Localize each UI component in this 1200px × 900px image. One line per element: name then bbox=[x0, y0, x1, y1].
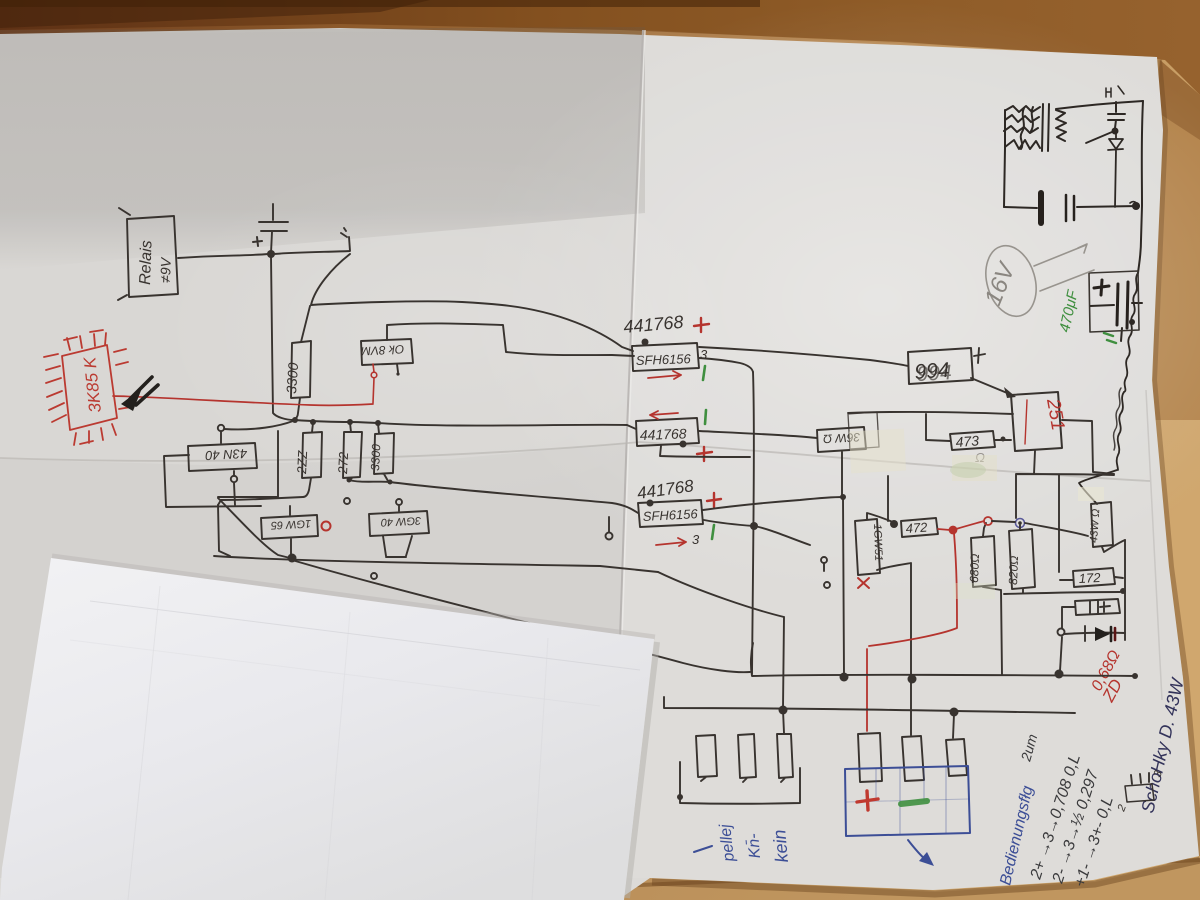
svg-text:994: 994 bbox=[916, 361, 952, 386]
svg-text:472: 472 bbox=[905, 519, 928, 536]
svg-text:1GW51: 1GW51 bbox=[871, 524, 884, 562]
svg-text:≠9V: ≠9V bbox=[157, 256, 174, 283]
svg-text:3GW 40: 3GW 40 bbox=[380, 514, 422, 528]
svg-text:172: 172 bbox=[1078, 570, 1101, 586]
svg-text:SFH6156: SFH6156 bbox=[642, 506, 698, 524]
svg-text:680Ω: 680Ω bbox=[967, 553, 982, 583]
svg-text:820Ω: 820Ω bbox=[1006, 555, 1021, 585]
svg-text:Kn̄-: Kn̄- bbox=[745, 833, 764, 859]
svg-text:272: 272 bbox=[335, 451, 351, 475]
svg-text:3300: 3300 bbox=[283, 362, 301, 394]
svg-text:473: 473 bbox=[955, 432, 980, 450]
svg-text:43N 40: 43N 40 bbox=[204, 446, 247, 463]
svg-text:3: 3 bbox=[700, 347, 708, 362]
svg-text:441768: 441768 bbox=[640, 425, 687, 443]
svg-text:2ZZ: 2ZZ bbox=[294, 449, 310, 475]
svg-text:Relais: Relais bbox=[137, 240, 156, 285]
svg-text:Ok 8VM: Ok 8VM bbox=[361, 342, 405, 358]
svg-text:1GW 65: 1GW 65 bbox=[270, 517, 312, 531]
svg-text:43W Ω: 43W Ω bbox=[1088, 508, 1102, 543]
svg-text:kein: kein bbox=[769, 829, 792, 864]
svg-text:3300: 3300 bbox=[368, 443, 383, 471]
svg-text:SFH6156: SFH6156 bbox=[636, 351, 692, 368]
svg-text:3: 3 bbox=[692, 532, 700, 547]
